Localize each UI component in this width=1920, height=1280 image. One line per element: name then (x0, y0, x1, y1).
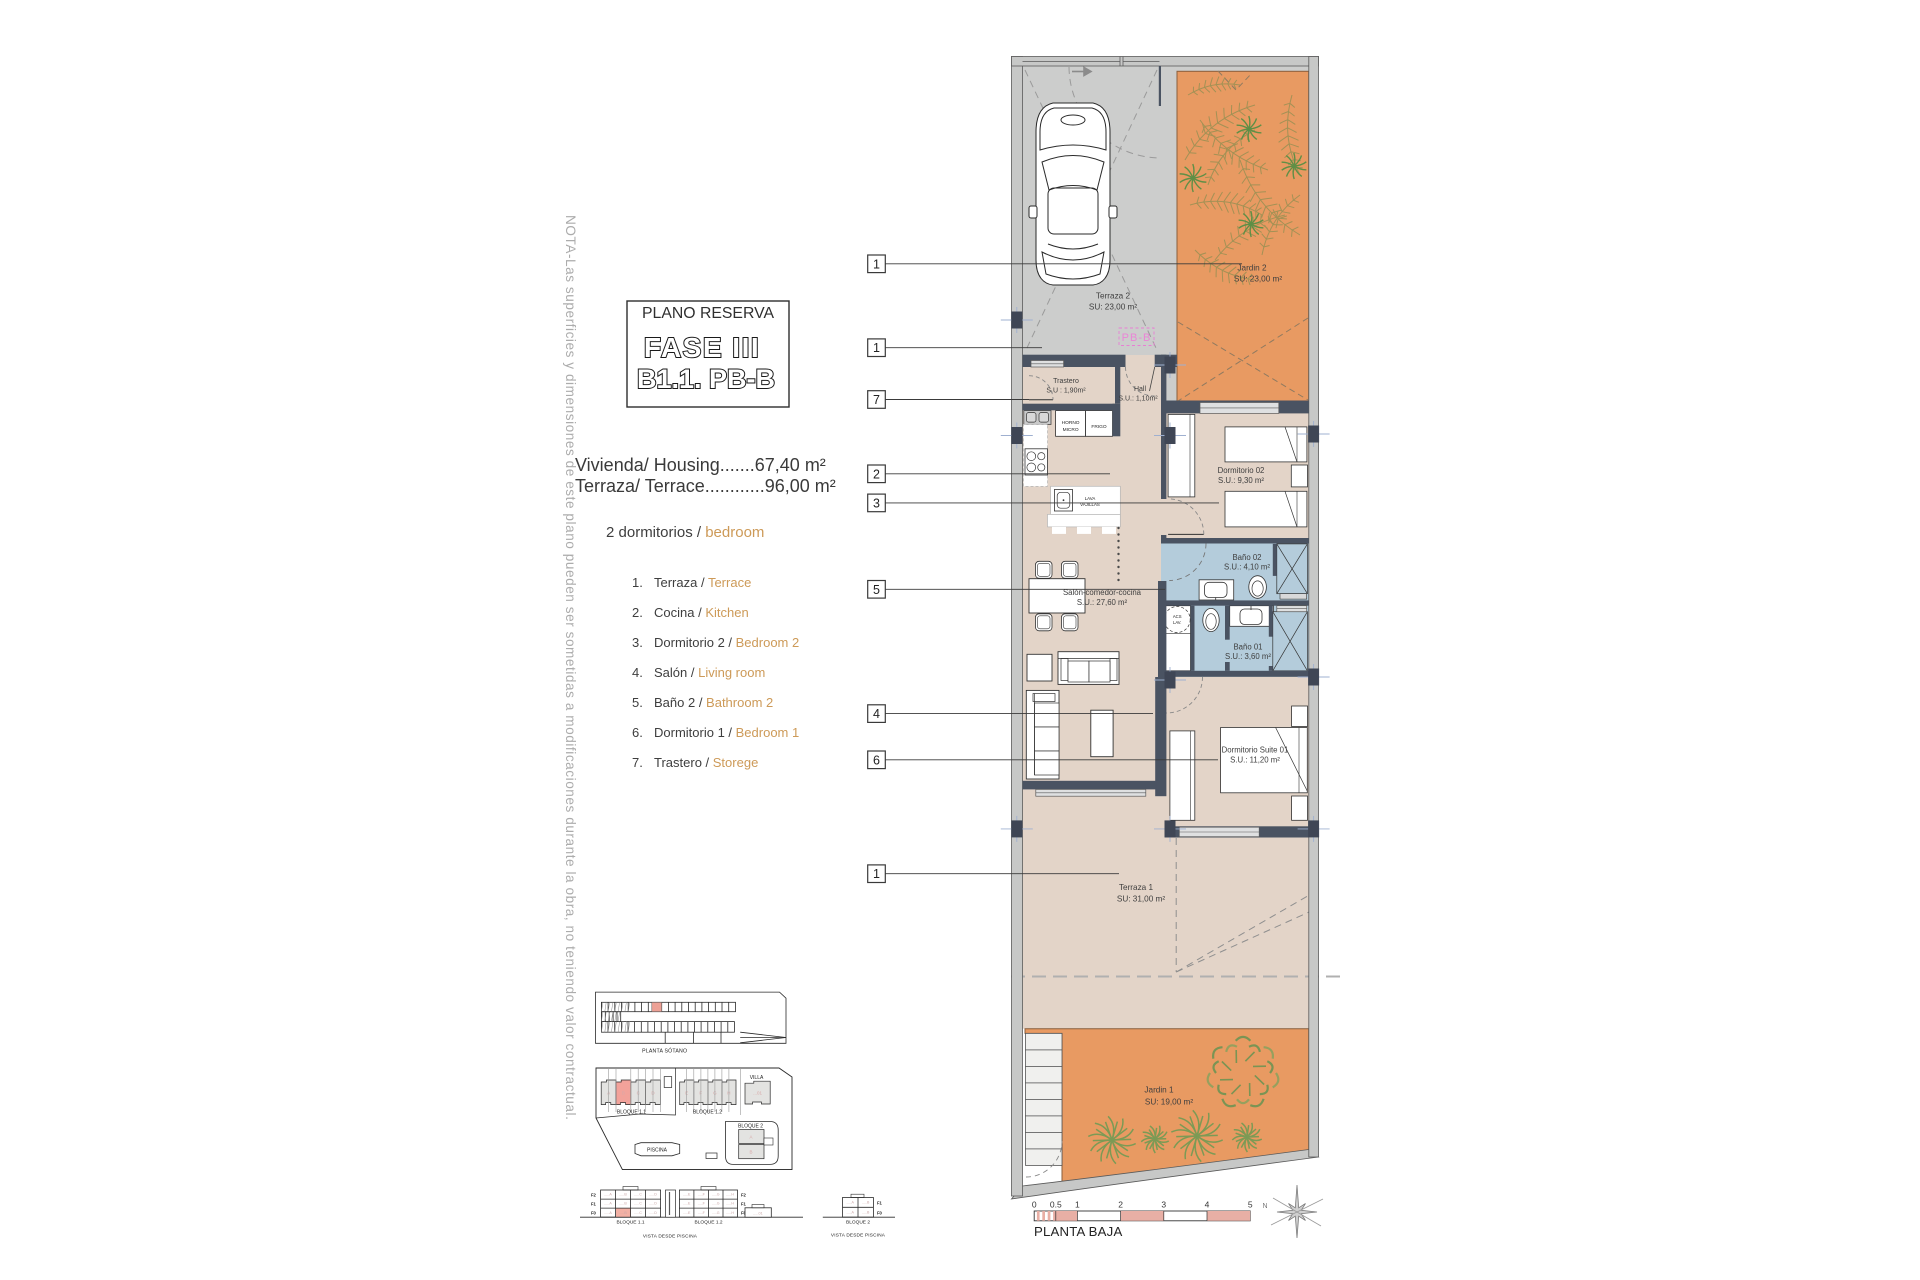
svg-text:PISCINA: PISCINA (647, 1148, 668, 1154)
svg-text:5: 5 (873, 583, 880, 597)
svg-text:ACS: ACS (1173, 614, 1182, 619)
svg-text:F0: F0 (877, 1211, 883, 1216)
svg-text:S.U : 1,90m²: S.U : 1,90m² (1046, 388, 1086, 395)
svg-text:0: 0 (1032, 1200, 1037, 1210)
svg-text:2: 2 (1118, 1200, 1123, 1210)
svg-text:Trastero / Storege: Trastero / Storege (654, 755, 758, 770)
svg-text:F1: F1 (877, 1201, 883, 1206)
svg-text:.....E: .....E (683, 1193, 691, 1197)
svg-text:.....E: .....E (683, 1202, 691, 1206)
svg-text:Hall: Hall (1134, 386, 1147, 393)
svg-text:Dormitorio 1 / Bedroom 1: Dormitorio 1 / Bedroom 1 (654, 725, 799, 740)
svg-text:S.U.: 11,20 m²: S.U.: 11,20 m² (1230, 756, 1280, 765)
svg-text:B1.1. PB-B: B1.1. PB-B (637, 364, 775, 394)
svg-text:.....A: .....A (604, 1202, 612, 1206)
svg-text:A: A (749, 1135, 752, 1140)
svg-text:3: 3 (873, 496, 880, 510)
svg-text:.....C: .....C (634, 1202, 642, 1206)
svg-text:F0: F0 (591, 1211, 597, 1216)
svg-text:.....D: .....D (649, 1202, 657, 1206)
svg-text:.....F: .....F (698, 1211, 706, 1215)
svg-text:...01: ...01 (753, 1091, 762, 1096)
svg-text:SU: 31,00 m²: SU: 31,00 m² (1117, 895, 1166, 904)
svg-text:S.U.: 27,60 m²: S.U.: 27,60 m² (1077, 598, 1128, 607)
svg-text:.....A: .....A (604, 1193, 612, 1197)
svg-text:SU: 19,00 m²: SU: 19,00 m² (1145, 1098, 1194, 1107)
svg-text:.....B: .....B (619, 1193, 627, 1197)
svg-text:.....01: .....01 (753, 1212, 763, 1216)
svg-text:.....G: .....G (712, 1193, 720, 1197)
svg-text:2: 2 (873, 467, 880, 481)
svg-text:.....E: .....E (683, 1211, 691, 1215)
svg-text:6.: 6. (632, 725, 643, 740)
svg-text:.....B: .....B (862, 1211, 870, 1215)
svg-text:4: 4 (1205, 1200, 1210, 1210)
svg-text:HORNO: HORNO (1062, 420, 1080, 426)
svg-text:.....D: .....D (649, 1193, 657, 1197)
svg-text:VISTA DESDE PISCINA: VISTA DESDE PISCINA (643, 1234, 698, 1239)
svg-text:1: 1 (1075, 1200, 1080, 1210)
svg-text:Terraza 1: Terraza 1 (1119, 883, 1154, 892)
svg-text:S.U.: 4,10 m²: S.U.: 4,10 m² (1224, 563, 1270, 572)
svg-text:VISTA DESDE PISCINA: VISTA DESDE PISCINA (831, 1233, 886, 1238)
svg-text:BLOQUE 1.2: BLOQUE 1.2 (693, 1110, 722, 1116)
svg-text:.....F: .....F (698, 1202, 706, 1206)
svg-text:SU: 23,00 m²: SU: 23,00 m² (1089, 303, 1138, 312)
svg-text:4.: 4. (632, 665, 643, 680)
svg-text:Vivienda/ Housing.......67,40: Vivienda/ Housing.......67,40 m² (575, 455, 826, 475)
svg-text:4: 4 (873, 707, 880, 721)
svg-text:Dormitorio 02: Dormitorio 02 (1218, 466, 1265, 475)
svg-text:2 dormitorios / bedroom: 2 dormitorios / bedroom (606, 524, 764, 541)
svg-text:3: 3 (1161, 1200, 1166, 1210)
svg-text:BLOQUE 1.2: BLOQUE 1.2 (695, 1220, 723, 1226)
svg-text:2.: 2. (632, 605, 643, 620)
svg-text:NOTA-Las superficies y dimensi: NOTA-Las superficies y dimensiones de es… (563, 215, 578, 1120)
svg-text:.....B: .....B (862, 1201, 870, 1205)
svg-text:.....D: .....D (649, 1211, 657, 1215)
svg-text:Terraza/ Terrace............96: Terraza/ Terrace............96,00 m² (575, 476, 836, 496)
svg-text:Baño 02: Baño 02 (1232, 553, 1261, 562)
svg-text:.....F: .....F (698, 1193, 706, 1197)
svg-text:.....C: .....C (634, 1193, 642, 1197)
svg-text:PB-B: PB-B (1122, 332, 1152, 344)
svg-text:S.U.: 3,60 m²: S.U.: 3,60 m² (1225, 652, 1271, 661)
svg-text:7: 7 (873, 393, 880, 407)
svg-text:5: 5 (1248, 1200, 1253, 1210)
svg-text:FRIGO: FRIGO (1091, 424, 1106, 430)
svg-text:Jardin 2: Jardin 2 (1237, 264, 1267, 273)
svg-text:Baño 01: Baño 01 (1233, 643, 1262, 652)
svg-text:.....H: .....H (726, 1211, 734, 1215)
svg-text:B: B (749, 1150, 752, 1155)
svg-text:1: 1 (873, 341, 880, 355)
svg-text:F2: F2 (591, 1193, 597, 1198)
svg-text:FASE III: FASE III (644, 332, 760, 363)
svg-text:5.: 5. (632, 695, 643, 710)
svg-text:Salón / Living room: Salón / Living room (654, 665, 765, 680)
svg-text:Terraza 2: Terraza 2 (1096, 292, 1131, 301)
svg-text:F1: F1 (741, 1202, 747, 1207)
svg-text:.....H: .....H (726, 1193, 734, 1197)
svg-text:.....G: .....G (712, 1202, 720, 1206)
svg-text:7.: 7. (632, 755, 643, 770)
svg-text:.....B: .....B (619, 1202, 627, 1206)
svg-text:.....G: .....G (712, 1211, 720, 1215)
svg-text:.....A: .....A (604, 1211, 612, 1215)
svg-text:1: 1 (873, 257, 880, 271)
svg-text:MICRO: MICRO (1063, 427, 1079, 433)
svg-text:6: 6 (873, 753, 880, 767)
svg-text:Dormitorio 2 / Bedroom 2: Dormitorio 2 / Bedroom 2 (654, 635, 799, 650)
svg-text:BLOQUE 1.1: BLOQUE 1.1 (617, 1220, 645, 1226)
svg-text:F1: F1 (591, 1202, 597, 1207)
svg-text:BLOQUE 2: BLOQUE 2 (846, 1220, 870, 1226)
svg-text:PLANTA SÓTANO: PLANTA SÓTANO (642, 1048, 687, 1055)
svg-text:.....H: .....H (726, 1202, 734, 1206)
svg-text:Cocina / Kitchen: Cocina / Kitchen (654, 605, 749, 620)
svg-text:1.: 1. (632, 575, 643, 590)
svg-text:Terraza / Terrace: Terraza / Terrace (654, 575, 751, 590)
svg-text:PLANO RESERVA: PLANO RESERVA (642, 305, 774, 322)
svg-text:.....A: .....A (847, 1201, 855, 1205)
svg-text:.....C: .....C (634, 1211, 642, 1215)
svg-text:1: 1 (873, 867, 880, 881)
svg-text:Trastero: Trastero (1053, 378, 1079, 385)
svg-text:S.U.: 1,10m²: S.U.: 1,10m² (1118, 396, 1158, 403)
svg-text:B: B (622, 1090, 625, 1095)
svg-text:Baño 2 / Bathroom 2: Baño 2 / Bathroom 2 (654, 695, 773, 710)
svg-text:.....A: .....A (847, 1211, 855, 1215)
svg-text:S.U.: 9,30 m²: S.U.: 9,30 m² (1218, 476, 1264, 485)
svg-text:3.: 3. (632, 635, 643, 650)
svg-text:Jardin 1: Jardin 1 (1144, 1086, 1174, 1095)
svg-text:.....B: .....B (619, 1211, 627, 1215)
svg-text:F2: F2 (741, 1193, 747, 1198)
svg-text:LAVA: LAVA (1085, 496, 1096, 501)
svg-text:LAV.: LAV. (1173, 620, 1181, 625)
svg-text:BLOQUE 2: BLOQUE 2 (738, 1124, 763, 1130)
svg-text:N: N (1262, 1203, 1267, 1210)
svg-text:Dormitorio Suite 01: Dormitorio Suite 01 (1222, 746, 1289, 755)
svg-text:PLANTA BAJA: PLANTA BAJA (1034, 1224, 1122, 1239)
svg-text:VILLA: VILLA (750, 1075, 764, 1081)
svg-text:SU: 23,00 m²: SU: 23,00 m² (1234, 275, 1283, 284)
svg-text:0.5: 0.5 (1050, 1200, 1062, 1210)
